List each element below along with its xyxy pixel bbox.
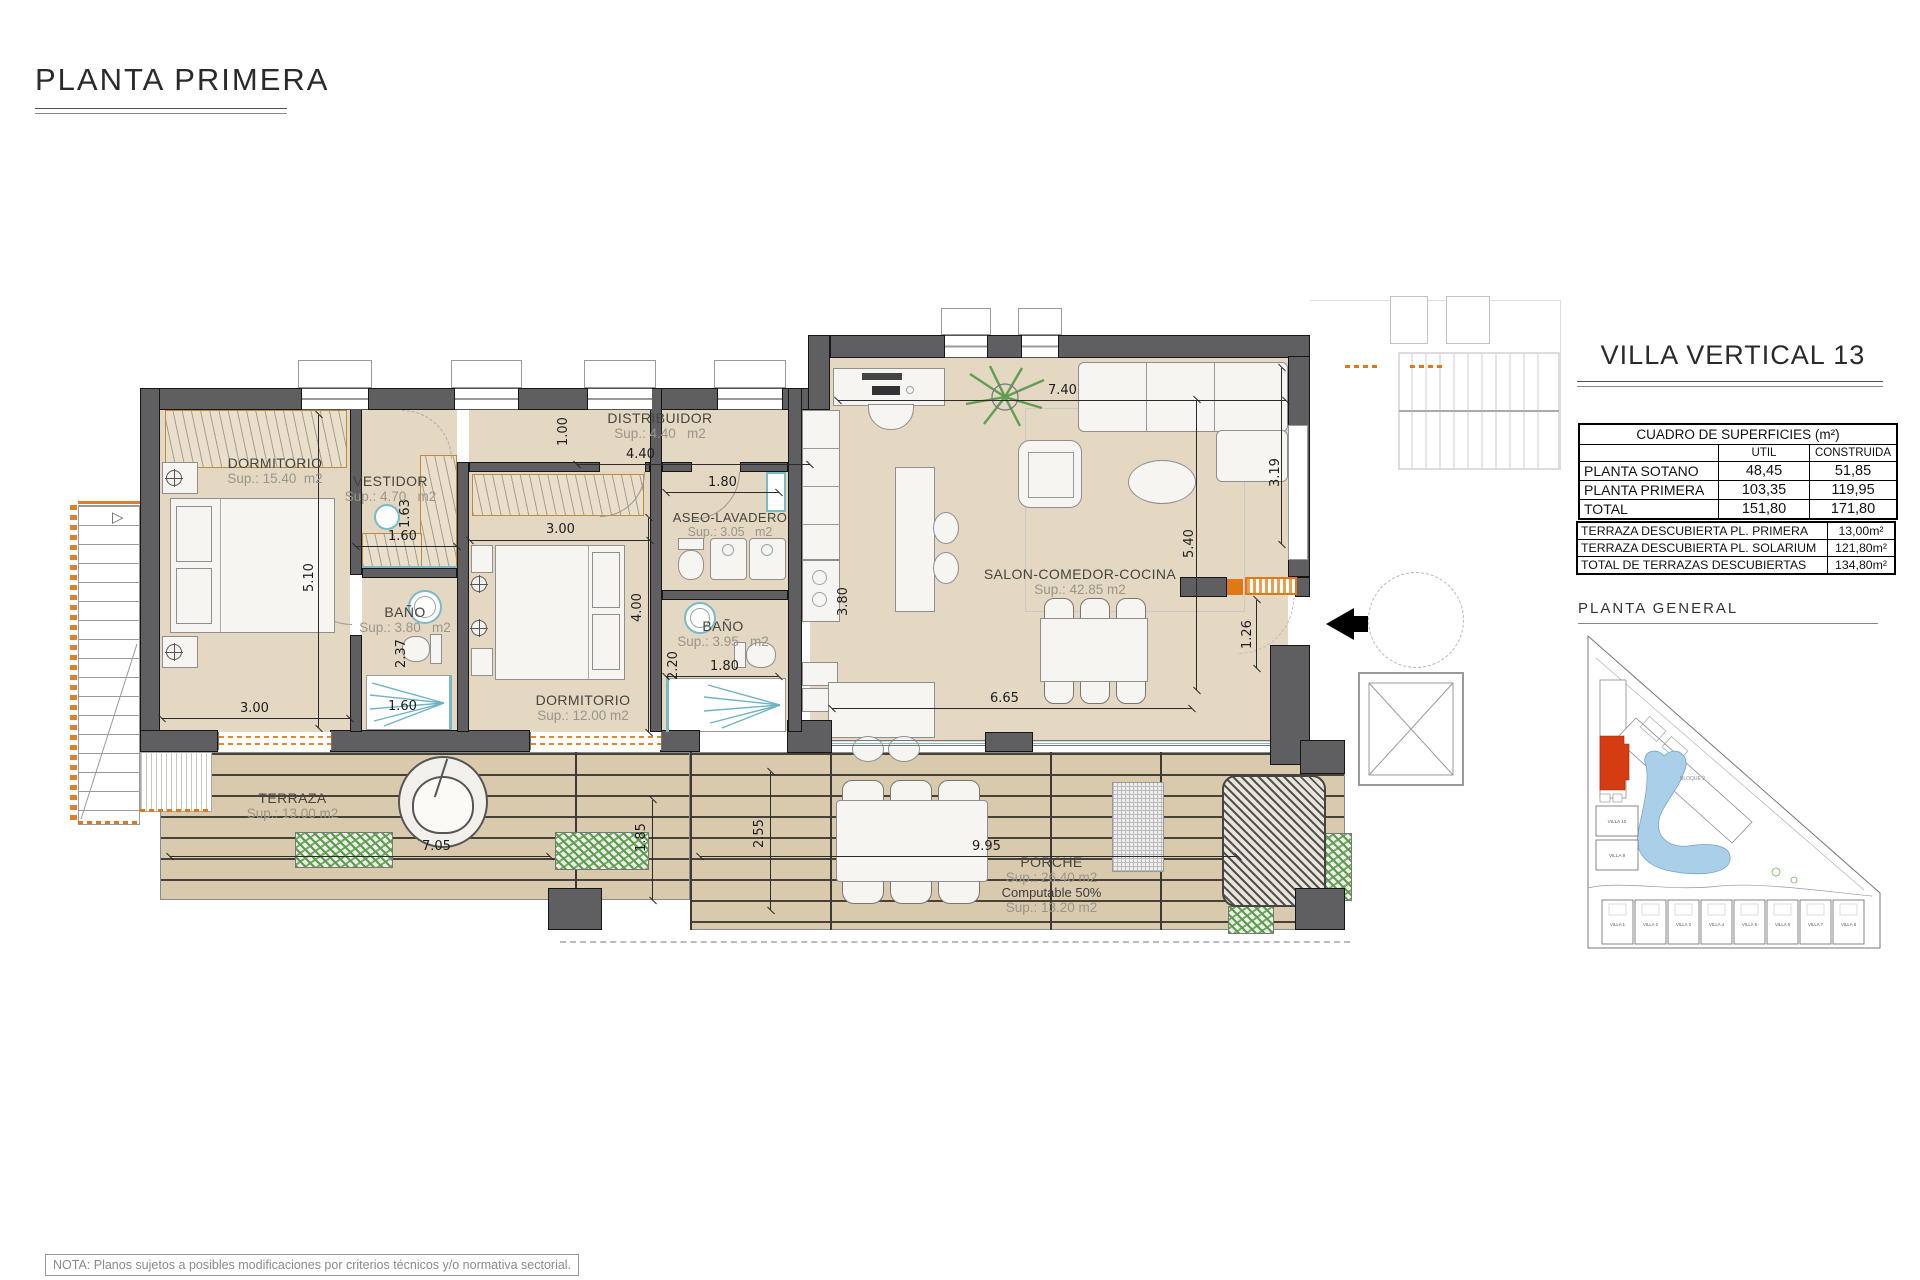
villa-label: VILLA 3 bbox=[1676, 922, 1692, 927]
communal-box bbox=[1390, 296, 1428, 344]
communal-line bbox=[1560, 300, 1561, 470]
surfaces-col-util: UTIL bbox=[1719, 445, 1810, 462]
mouse bbox=[906, 386, 914, 394]
porch-post bbox=[1295, 888, 1345, 930]
dim-label: 1.85 bbox=[634, 823, 649, 852]
keyboard bbox=[872, 386, 900, 395]
dim-line bbox=[1281, 368, 1282, 544]
washer-knob bbox=[761, 544, 773, 556]
site-plan-map: VILLA 10 VILLA 9 BLOQUE 2 VILLA 1 VILLA … bbox=[1580, 630, 1890, 960]
room-label-distribuidor: DISTRIBUIDOR Sup.: 4.40 m2 bbox=[580, 410, 740, 441]
wall bbox=[987, 335, 1022, 358]
shower-glass bbox=[449, 675, 452, 730]
kitchen-tall-units bbox=[802, 410, 840, 560]
kitchen-unit-line bbox=[802, 448, 840, 449]
nightstand bbox=[471, 545, 493, 573]
bloque2-label: BLOQUE 2 bbox=[1680, 776, 1705, 782]
villa-label: VILLA 1 bbox=[1610, 922, 1626, 927]
disclaimer-note: NOTA: Planos sujetos a posibles modifica… bbox=[45, 1254, 579, 1276]
door-frame-orange bbox=[1227, 579, 1243, 595]
deck-joint bbox=[575, 752, 577, 900]
table-row: PLANTA PRIMERA 103,35 119,95 bbox=[1579, 481, 1897, 500]
room-label-dormitorio2: DORMITORIO Sup.: 12.00 m2 bbox=[505, 692, 661, 723]
wall-light-symbol bbox=[166, 470, 182, 486]
window bbox=[718, 388, 782, 410]
room-label-porche: PORCHE Sup.: 26.40 m2 Computable 50% Sup… bbox=[984, 854, 1119, 915]
stair-diagonal bbox=[78, 640, 140, 822]
dim-line bbox=[577, 464, 810, 465]
villa10-label: VILLA 10 bbox=[1608, 819, 1627, 824]
window-bay bbox=[298, 360, 372, 388]
elevator bbox=[1358, 672, 1464, 786]
bed-line bbox=[588, 546, 589, 679]
sink-bowl bbox=[812, 570, 827, 585]
wall bbox=[660, 730, 700, 752]
dim-line bbox=[170, 856, 550, 857]
dim-label: 2.55 bbox=[752, 819, 767, 848]
dim-line bbox=[838, 400, 1286, 401]
coffee-table bbox=[1128, 460, 1196, 504]
wall-left bbox=[140, 388, 160, 752]
toilet-tank bbox=[678, 538, 704, 550]
sofa bbox=[1078, 362, 1288, 432]
sofa-cushion-line bbox=[1214, 363, 1215, 431]
toilet bbox=[678, 550, 704, 580]
wall bbox=[1295, 577, 1310, 597]
partition bbox=[457, 462, 469, 732]
french-window bbox=[530, 732, 662, 750]
table-row: PLANTA SOTANO 48,45 51,85 bbox=[1579, 462, 1897, 481]
dim-line bbox=[700, 856, 1238, 857]
deck-joint bbox=[830, 752, 832, 930]
communal-box bbox=[1446, 296, 1490, 344]
villa-label: VILLA 4 bbox=[1709, 922, 1725, 927]
dim-label: 4.40 bbox=[626, 447, 655, 462]
dim-label: 2.20 bbox=[666, 651, 681, 680]
dim-label: 1.26 bbox=[1240, 620, 1255, 649]
wall bbox=[518, 388, 588, 410]
outdoor-mat bbox=[1112, 782, 1164, 872]
surfaces-col-empty bbox=[1579, 445, 1719, 462]
window-bay bbox=[584, 360, 656, 388]
wall bbox=[330, 730, 530, 752]
dim-line bbox=[1256, 600, 1257, 668]
shower-spray-icon bbox=[700, 680, 784, 730]
shower-glass bbox=[666, 678, 669, 732]
kitchen-island bbox=[895, 467, 935, 612]
wall bbox=[808, 335, 830, 410]
surfaces-col-construida: CONSTRUIDA bbox=[1810, 445, 1898, 462]
window bbox=[945, 335, 987, 358]
site-plan-title: PLANTA GENERAL bbox=[1578, 600, 1738, 617]
sink-bowl bbox=[812, 592, 827, 607]
terrace-table: TERRAZA DESCUBIERTA PL. PRIMERA 13,00m² … bbox=[1576, 521, 1896, 575]
porch-post bbox=[1300, 740, 1345, 774]
wall-light-symbol bbox=[471, 620, 487, 636]
pillow bbox=[592, 552, 620, 608]
partition bbox=[662, 590, 788, 600]
entrance-arrow-icon bbox=[1326, 608, 1354, 640]
room-label-vestidor: VESTIDOR Sup.: 4.70 m2 bbox=[328, 473, 453, 504]
dim-line bbox=[770, 772, 771, 910]
dim-label: 5.40 bbox=[1182, 529, 1197, 558]
partition bbox=[362, 568, 457, 578]
wall bbox=[1058, 335, 1310, 358]
villa-label: VILLA 7 bbox=[1808, 922, 1824, 927]
armchair-seat bbox=[1028, 452, 1074, 498]
dim-line bbox=[666, 492, 779, 493]
dim-label: 1.00 bbox=[556, 417, 571, 446]
stool bbox=[933, 552, 959, 584]
window-bay bbox=[1018, 308, 1062, 335]
room-label-terraza: TERRAZA Sup.: 13.00 m2 bbox=[230, 790, 355, 821]
washbasin bbox=[374, 504, 400, 530]
partition bbox=[350, 635, 362, 732]
room-label-salon: SALON-COMEDOR-COCINA Sup.: 42.85 m2 bbox=[975, 566, 1185, 597]
ramp-orange-edge bbox=[140, 808, 212, 814]
planter bbox=[1228, 906, 1274, 934]
outdoor-table bbox=[836, 800, 988, 882]
communal-window-orange bbox=[1345, 364, 1379, 370]
surfaces-table: CUADRO DE SUPERFICIES (m²) UTIL CONSTRUI… bbox=[1578, 423, 1898, 520]
room-label-bano1: BAÑO Sup.: 3.80 m2 bbox=[345, 604, 465, 635]
nightstand bbox=[471, 648, 493, 676]
window-bay bbox=[714, 360, 786, 388]
stool bbox=[933, 512, 959, 544]
wall bbox=[148, 388, 302, 410]
deck-joint bbox=[690, 752, 692, 930]
villa-label: VILLA 2 bbox=[1643, 922, 1659, 927]
dim-label: 3.00 bbox=[240, 701, 269, 716]
kitchen-unit-line bbox=[802, 486, 840, 487]
closet bbox=[420, 455, 457, 568]
villa-title-underline bbox=[1577, 381, 1883, 387]
porch-post bbox=[985, 732, 1033, 752]
dim-line bbox=[162, 718, 350, 719]
porch-post bbox=[548, 888, 602, 930]
dim-label: 7.40 bbox=[1048, 383, 1077, 398]
wall bbox=[1180, 577, 1227, 597]
window-bay bbox=[451, 360, 522, 388]
floorplan-sheet: PLANTA PRIMERA NOTA: Planos sujetos a po… bbox=[0, 0, 1920, 1280]
page-title-underline bbox=[35, 108, 287, 114]
french-window bbox=[218, 732, 332, 750]
site-plan-underline bbox=[1578, 623, 1878, 624]
surfaces-table-title: CUADRO DE SUPERFICIES (m²) bbox=[1579, 424, 1897, 445]
dim-label: 4.00 bbox=[630, 593, 645, 622]
dim-label: 3.00 bbox=[546, 522, 575, 537]
washer-knob bbox=[722, 544, 734, 556]
turning-circle bbox=[1368, 572, 1464, 668]
dim-line bbox=[666, 676, 779, 677]
table-row: TOTAL 151,80 171,80 bbox=[1579, 500, 1897, 520]
plant-icon bbox=[960, 362, 1050, 432]
dim-line bbox=[832, 708, 1192, 709]
villa-label: VILLA 5 bbox=[1742, 922, 1758, 927]
dim-label: 5.10 bbox=[302, 563, 317, 592]
room-label-aseo: ASEO-LAVADERO Sup.: 3.05 m2 bbox=[665, 510, 795, 539]
table-row: TERRAZA DESCUBIERTA PL. SOLARIUM 121,80m… bbox=[1577, 540, 1895, 557]
ramp-hatch bbox=[140, 752, 212, 812]
entrance-door bbox=[1245, 577, 1297, 595]
dim-label: 3.80 bbox=[836, 587, 851, 616]
pillow bbox=[176, 506, 212, 562]
window bbox=[1022, 335, 1058, 358]
toilet-tank bbox=[430, 634, 442, 664]
dim-label: 7.05 bbox=[422, 839, 451, 854]
glass-strip bbox=[362, 566, 457, 568]
villa-label: VILLA 6 bbox=[1775, 922, 1791, 927]
dining-table bbox=[1040, 618, 1148, 682]
highlighted-villa13 bbox=[1600, 736, 1629, 790]
planter bbox=[295, 832, 393, 868]
wall bbox=[830, 335, 945, 358]
pillow bbox=[176, 568, 212, 624]
dim-label: 1.80 bbox=[710, 659, 739, 674]
dim-label: 1.80 bbox=[708, 475, 737, 490]
stair-orange-hatch bbox=[70, 505, 77, 825]
window bbox=[588, 388, 652, 410]
villa-label: VILLA 8 bbox=[1841, 922, 1857, 927]
dim-label: 1.60 bbox=[388, 529, 417, 544]
villa9-label: VILLA 9 bbox=[1609, 853, 1626, 858]
dim-label: 3.19 bbox=[1268, 458, 1283, 487]
hanging-chair-seat bbox=[412, 776, 474, 834]
wall-light-symbol bbox=[471, 576, 487, 592]
wall bbox=[140, 730, 218, 752]
window-bay bbox=[941, 308, 991, 335]
shelving-niche bbox=[1288, 425, 1308, 560]
dim-label: 9.95 bbox=[972, 839, 1001, 854]
entrance-arrow-tail bbox=[1352, 616, 1368, 632]
kitchen-peninsula bbox=[828, 682, 935, 738]
communal-line bbox=[1310, 300, 1560, 301]
room-label-bano2: BAÑO Sup.: 3.95 m2 bbox=[663, 618, 783, 649]
table-row: TERRAZA DESCUBIERTA PL. PRIMERA 13,00m² bbox=[1577, 522, 1895, 540]
stair-orange-edge bbox=[78, 501, 140, 504]
sliding-glass-door bbox=[832, 740, 1288, 746]
dim-line bbox=[470, 540, 650, 541]
dim-line bbox=[356, 546, 457, 547]
stair-direction-arrow-icon: ▷ bbox=[112, 508, 124, 526]
wall-light-symbol bbox=[166, 644, 182, 660]
property-dashed-line bbox=[560, 941, 1350, 943]
partition bbox=[788, 388, 802, 732]
communal-window-orange bbox=[1410, 364, 1442, 370]
dim-label: 2.37 bbox=[394, 639, 409, 668]
dim-label: 1.60 bbox=[388, 699, 417, 714]
bed-line bbox=[220, 499, 221, 632]
page-title: PLANTA PRIMERA bbox=[35, 62, 329, 98]
wall bbox=[368, 388, 455, 410]
window bbox=[302, 388, 368, 410]
window bbox=[455, 388, 518, 410]
kitchen-unit-line bbox=[802, 524, 840, 525]
dim-line bbox=[652, 800, 653, 900]
sofa-cushion-line bbox=[1146, 363, 1147, 431]
villa-title: VILLA VERTICAL 13 bbox=[1583, 340, 1883, 371]
pillow bbox=[592, 614, 620, 670]
monitor bbox=[862, 373, 902, 380]
table-row: TOTAL DE TERRAZAS DESCUBIERTAS 134,80m² bbox=[1577, 557, 1895, 575]
dim-label: 6.65 bbox=[990, 691, 1019, 706]
